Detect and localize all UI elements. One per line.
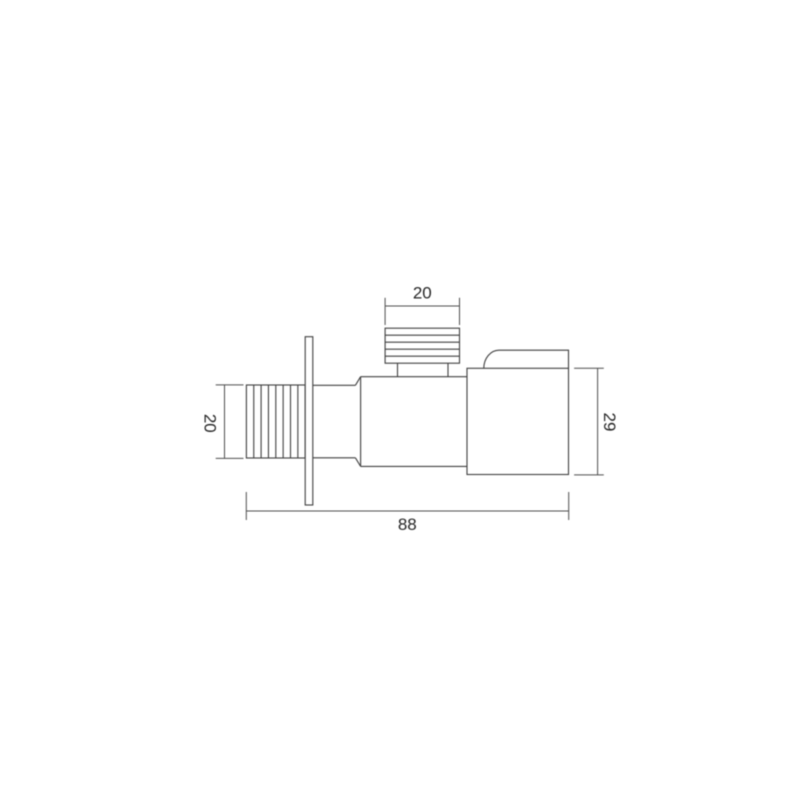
svg-text:20: 20 <box>413 283 432 302</box>
svg-text:29: 29 <box>600 413 619 432</box>
svg-text:88: 88 <box>398 515 417 534</box>
svg-text:20: 20 <box>200 414 219 433</box>
